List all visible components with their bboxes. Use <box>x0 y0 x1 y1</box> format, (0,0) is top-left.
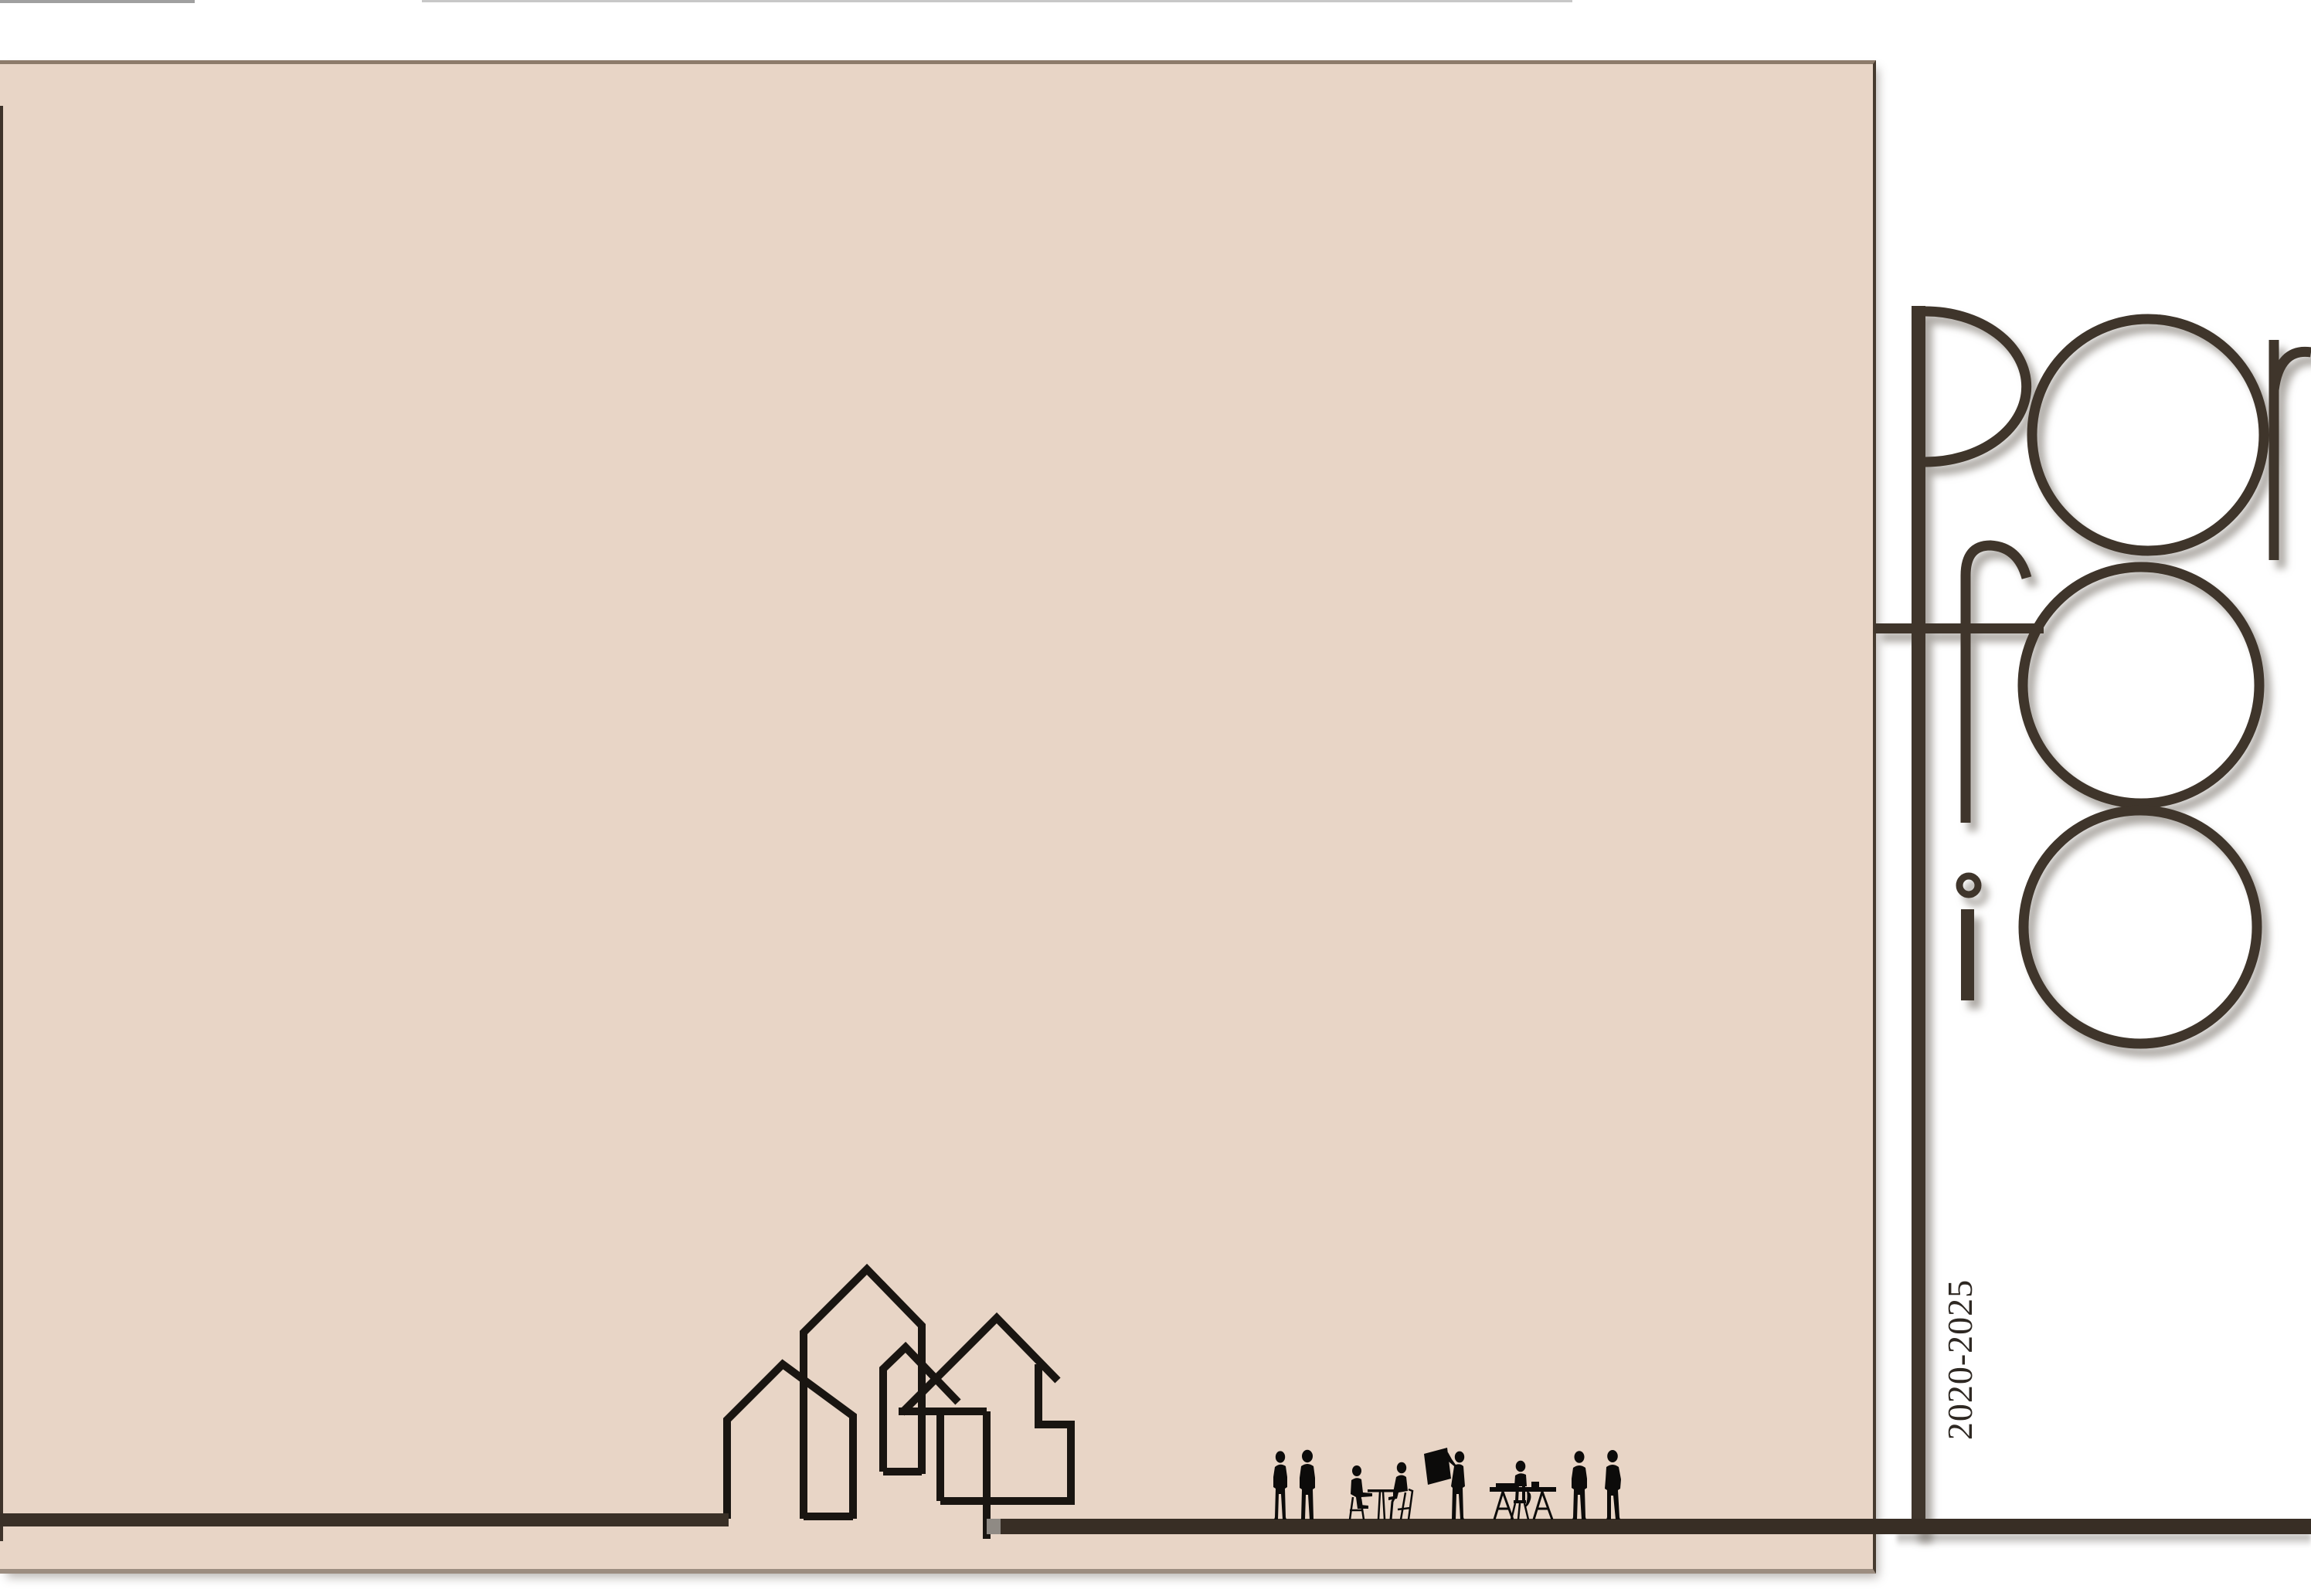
standing-man <box>1572 1451 1587 1520</box>
standing-man <box>1273 1451 1287 1520</box>
portfolio-wordmark <box>1854 294 2311 1545</box>
letter-i-stem <box>1961 909 1974 1000</box>
baseline-bar-left <box>0 1513 729 1526</box>
baseline-bar-right <box>987 1519 2311 1534</box>
letter-f <box>1966 545 2027 823</box>
standing-man <box>1300 1450 1315 1520</box>
letter-r <box>2274 340 2311 560</box>
top-edge-line-left <box>0 0 195 3</box>
house-outline <box>727 1364 853 1519</box>
people-silhouettes <box>1259 1443 1646 1526</box>
letter-P-bowl <box>1925 311 2027 462</box>
baseline-bar-gray-nub <box>987 1519 1001 1534</box>
baseline-bar-shadow <box>1897 1534 2311 1547</box>
houses-line-art <box>695 1251 1097 1560</box>
left-edge-accent-line <box>0 106 3 1541</box>
house-step-wall <box>940 1364 1071 1501</box>
portfolio-cover-page: 2020-2025 <box>0 0 2311 1596</box>
letter-O-3 <box>2024 810 2257 1044</box>
drafter-at-trestle-table <box>1490 1461 1556 1520</box>
years-label: 2020-2025 <box>1941 1271 1980 1448</box>
letter-stem-l <box>1912 306 1925 1534</box>
standing-man <box>1605 1450 1621 1520</box>
man-holding-drawing-board <box>1424 1448 1465 1520</box>
letter-o-1 <box>2032 319 2264 551</box>
letter-o-2 <box>2023 567 2259 803</box>
letter-t-crossbar <box>1874 623 2044 633</box>
top-edge-line-right <box>422 0 1572 2</box>
drafting-tabletop <box>1490 1487 1556 1492</box>
letter-i-dot <box>1959 876 1978 895</box>
two-seated-at-table <box>1350 1462 1412 1520</box>
